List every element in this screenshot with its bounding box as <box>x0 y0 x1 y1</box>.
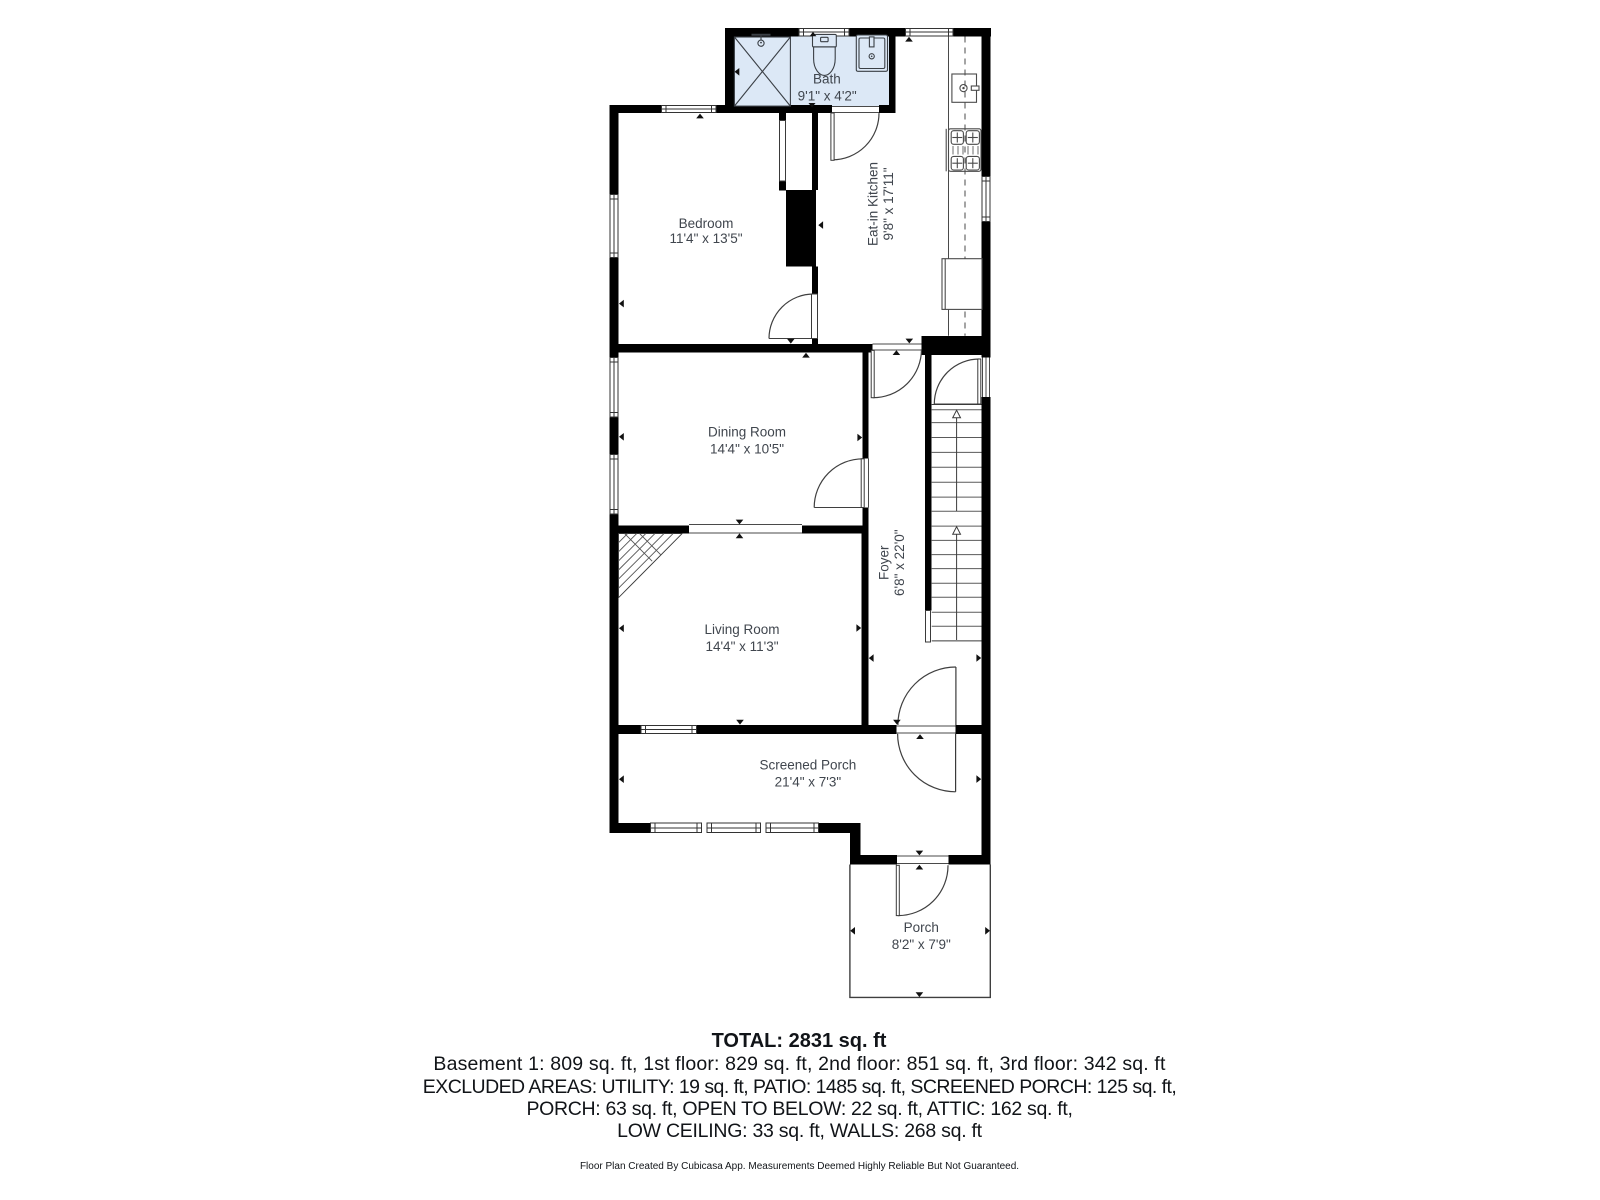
svg-text:21'4" x 7'3": 21'4" x 7'3" <box>775 774 842 789</box>
svg-text:LOW CEILING: 33 sq. ft, WALLS:: LOW CEILING: 33 sq. ft, WALLS: 268 sq. f… <box>617 1120 983 1142</box>
svg-text:14'4" x 11'3": 14'4" x 11'3" <box>705 639 778 654</box>
svg-text:Basement 1: 809 sq. ft, 1st fl: Basement 1: 809 sq. ft, 1st floor: 829 s… <box>433 1053 1166 1075</box>
svg-text:Floor Plan Created By Cubicasa: Floor Plan Created By Cubicasa App. Meas… <box>580 1161 1019 1172</box>
svg-text:Dining Room: Dining Room <box>708 424 786 439</box>
svg-text:6'8" x 22'0": 6'8" x 22'0" <box>892 529 907 596</box>
svg-text:8'2" x 7'9": 8'2" x 7'9" <box>892 937 951 952</box>
svg-text:EXCLUDED AREAS: UTILITY: 19 sq: EXCLUDED AREAS: UTILITY: 19 sq. ft, PATI… <box>423 1076 1176 1098</box>
svg-text:11'4" x 13'5": 11'4" x 13'5" <box>669 231 742 246</box>
svg-text:Bedroom: Bedroom <box>679 216 734 231</box>
svg-text:Porch: Porch <box>904 920 939 935</box>
svg-text:Bath: Bath <box>813 72 841 87</box>
svg-text:Foyer: Foyer <box>877 545 892 580</box>
svg-text:Eat-in Kitchen: Eat-in Kitchen <box>866 162 881 246</box>
svg-text:14'4" x 10'5": 14'4" x 10'5" <box>710 441 784 456</box>
svg-text:PORCH: 63 sq. ft, OPEN TO BELO: PORCH: 63 sq. ft, OPEN TO BELOW: 22 sq. … <box>526 1098 1072 1120</box>
svg-text:Screened Porch: Screened Porch <box>759 757 856 772</box>
svg-text:Living Room: Living Room <box>704 622 779 637</box>
svg-text:9'8" x 17'11": 9'8" x 17'11" <box>881 167 896 240</box>
svg-text:9'1" x 4'2": 9'1" x 4'2" <box>798 89 857 104</box>
svg-text:TOTAL: 2831 sq. ft: TOTAL: 2831 sq. ft <box>712 1030 887 1052</box>
